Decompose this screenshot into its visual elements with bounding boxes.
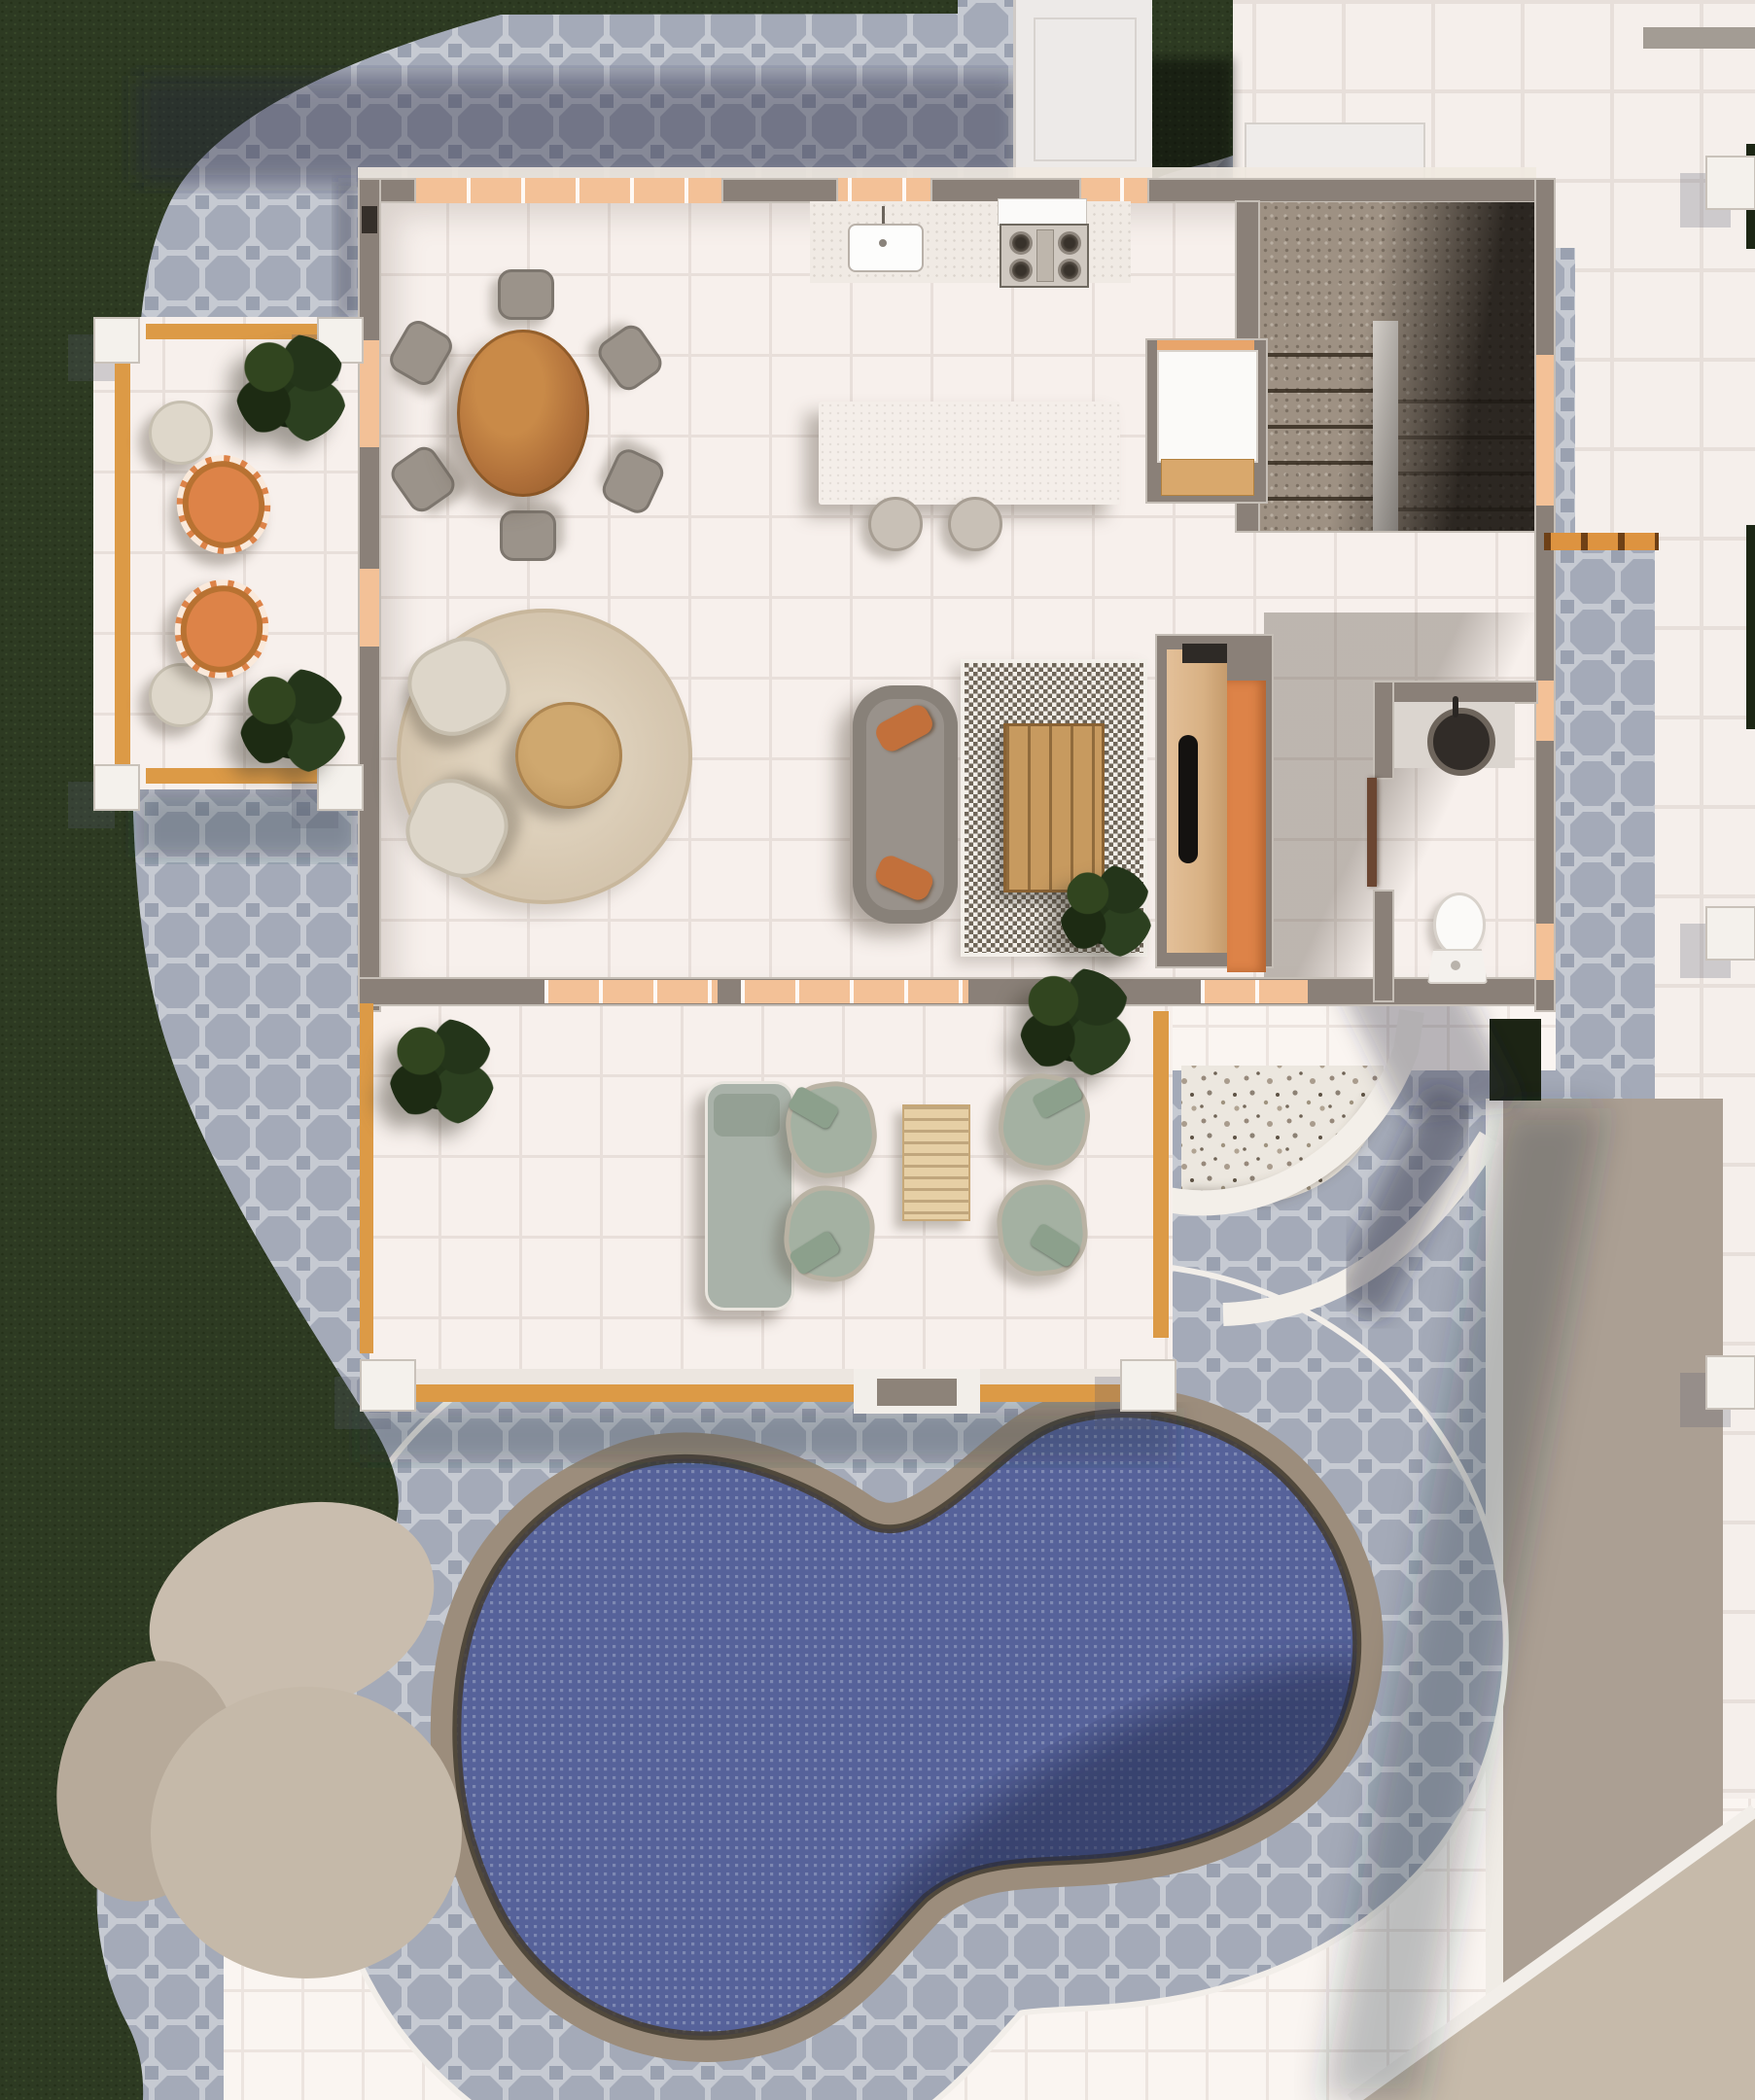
shadow-below-patio — [360, 1408, 1176, 1462]
bath-faucet — [1453, 696, 1458, 717]
pool-water-shadow — [831, 1606, 1424, 2026]
front-door-frame — [1201, 980, 1308, 1003]
wall-top-seg-2 — [721, 178, 838, 203]
patio-beam-right — [1153, 1011, 1169, 1338]
pool-deck — [457, 1414, 1357, 2036]
patio-slider-1 — [544, 980, 718, 1003]
patio-fascia — [373, 1369, 1169, 1384]
porch-post-nw — [93, 317, 140, 364]
closet-door — [1157, 350, 1258, 463]
porch-beam-left — [115, 350, 130, 768]
shadow-band-diagonal — [1322, 1108, 1604, 2100]
stair-treads-right — [1398, 367, 1534, 531]
pool-tile-bottom-right — [1342, 1594, 1502, 2100]
burner-icon — [1009, 231, 1033, 255]
pool-deck-edge — [457, 1414, 1357, 2036]
wall-left-window-glass — [362, 206, 377, 233]
lounger-headrest — [714, 1094, 780, 1137]
patio-plant-left — [389, 1019, 496, 1126]
stepping-pad-c — [151, 1687, 462, 1978]
entry-step-tiles — [1167, 1006, 1556, 1070]
stepping-pad-b — [35, 1644, 261, 1919]
porch-plant-top — [235, 334, 348, 443]
patio-post-left — [360, 1359, 416, 1412]
hedge-dark-patch — [1490, 1019, 1541, 1101]
media-wall-vent — [1182, 644, 1227, 663]
front-walk-curb-2 — [1223, 1137, 1490, 1314]
porch-side-table — [149, 401, 213, 465]
burner-icon — [1058, 259, 1081, 282]
sofa-pillow — [872, 701, 936, 754]
stove-center-panel — [1036, 229, 1054, 282]
sliding-orange-door — [1227, 681, 1266, 972]
sink-faucet-icon — [879, 239, 887, 247]
entry-terrazzo-mat — [1181, 1066, 1384, 1207]
garage-roof-outline — [1034, 17, 1137, 161]
shadow-walk-diagonal — [1356, 1099, 1458, 1308]
terrace-post-2 — [1705, 906, 1755, 961]
garage-roof — [1013, 0, 1152, 187]
top-right-wall-band — [1643, 27, 1755, 49]
dining-table — [457, 330, 589, 497]
lawn-top-right — [1147, 0, 1233, 183]
terrace-tile-right-outer — [1723, 1099, 1755, 2100]
wall-bath-left-upper — [1373, 681, 1394, 780]
burner-icon — [1009, 259, 1033, 282]
island-stool — [868, 497, 923, 551]
patio-slat-table — [902, 1104, 970, 1221]
chair-pillow — [789, 1230, 841, 1276]
pool-tile-bottom — [224, 1799, 1755, 2100]
floor-plan-render — [0, 0, 1755, 2100]
living-side-table — [515, 702, 622, 809]
porch-post-se — [317, 764, 364, 811]
corner-walkway-edge — [1351, 1810, 1755, 2100]
kitchen-island — [819, 402, 1120, 505]
porch-plant-bottom — [239, 669, 348, 774]
dining-chair — [500, 510, 556, 561]
wall-left-porch-door — [360, 569, 379, 647]
wall-top-seg-4 — [1147, 178, 1536, 203]
terrace-tile-right-mid — [1655, 549, 1755, 1099]
tv — [1178, 735, 1198, 863]
side-path-taupe-band — [1503, 1099, 1723, 2100]
patio-slider-2 — [741, 980, 968, 1003]
sun-lounger — [705, 1081, 794, 1311]
terrace-post-1 — [1705, 156, 1755, 210]
toilet-flush-button — [1451, 961, 1460, 970]
staircase — [1260, 202, 1534, 531]
toilet-bowl — [1433, 892, 1486, 957]
wall-right-door-1 — [1536, 681, 1554, 741]
sofa-pillow — [872, 853, 936, 904]
pool-coping — [457, 1414, 1357, 2036]
wall-right-window-1 — [1536, 355, 1554, 506]
stair-treads-left — [1260, 321, 1373, 531]
wall-right-door-2 — [1536, 924, 1554, 980]
wall-right — [1534, 178, 1556, 1012]
shadow-left-of-house — [334, 182, 360, 318]
dining-chair — [498, 269, 554, 320]
patio-step-mat — [877, 1379, 957, 1406]
patio-post-right — [1120, 1359, 1176, 1412]
side-path-white-edge-left — [1486, 1099, 1503, 2100]
closet-bench — [1161, 459, 1254, 496]
pool-water — [457, 1414, 1357, 2036]
kitchen-sink — [848, 224, 924, 272]
pool — [457, 1414, 1424, 2036]
range-hood — [998, 198, 1087, 226]
living-plant — [1060, 865, 1153, 959]
gas-stove — [1000, 224, 1089, 288]
corner-walkway — [1351, 1810, 1755, 2100]
patio-step — [854, 1369, 980, 1414]
front-walk-curb-1 — [1159, 1011, 1412, 1203]
closet-trim — [1157, 340, 1254, 350]
entry-mat-shading — [1184, 1101, 1377, 1200]
chair-pillow — [1029, 1222, 1081, 1268]
bath-basin — [1427, 708, 1495, 776]
sink-faucet-stem — [882, 206, 885, 224]
terrace-tile-right-upper — [1575, 0, 1755, 549]
terrace-orange-beam — [1544, 533, 1659, 550]
lawn-right-sliver-2 — [1746, 525, 1755, 729]
bath-door — [1367, 778, 1377, 887]
wall-bath-left-lower — [1373, 890, 1394, 1002]
stair-stringer — [1373, 321, 1398, 531]
sofa — [853, 685, 958, 924]
stepping-pad-a — [122, 1467, 462, 1751]
living-coffee-table — [1003, 723, 1105, 892]
chair-pillow — [787, 1085, 840, 1131]
terrace-post-3 — [1705, 1355, 1755, 1410]
patio-beam-left — [360, 1003, 373, 1353]
island-stool — [948, 497, 1002, 551]
chair-pillow — [1031, 1075, 1084, 1119]
porch-post-sw — [93, 764, 140, 811]
patio-plant-right — [1019, 968, 1134, 1077]
patio-beam-bottom-1 — [408, 1384, 865, 1402]
shadow-garage-right — [1140, 58, 1233, 185]
burner-icon — [1058, 231, 1081, 255]
